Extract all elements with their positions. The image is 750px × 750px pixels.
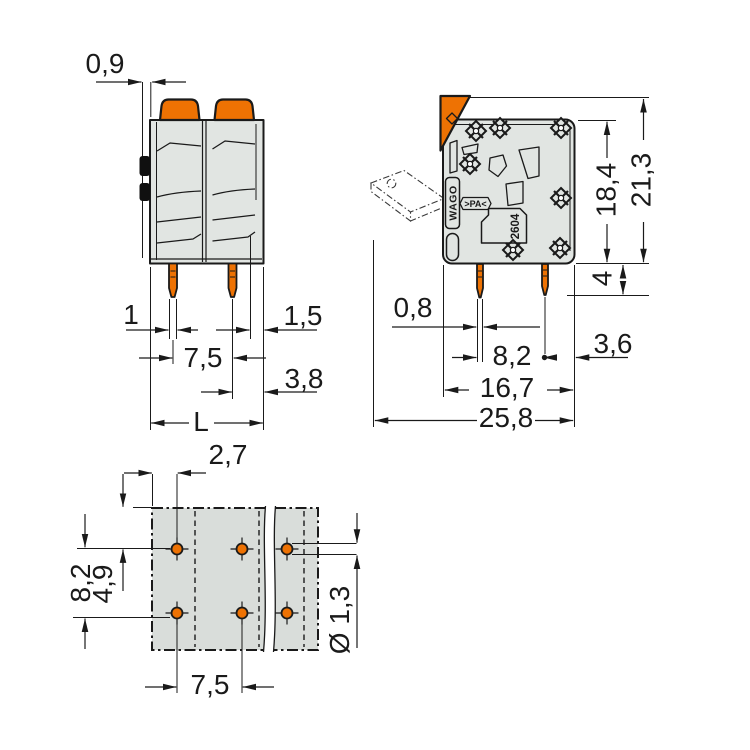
dim-label-pin-shoulder: 4 [587,271,618,287]
side-pin-front [477,264,483,298]
dim-label-pin-thickness: 0,8 [394,292,433,323]
dim-label-body-depth: 16,7 [480,372,535,403]
front-pin-left [169,264,177,298]
dim-label-pin-to-edge: 3,8 [285,363,324,394]
material-marking: >PA< [464,199,486,209]
push-button-left [160,100,200,121]
dim-label-total-depth: 25,8 [479,402,534,433]
dim-label-pin-width: 1 [123,299,139,330]
dim-label-edge-to-pin: 2,7 [209,439,248,470]
dim-label-edge-gap: 1,5 [284,300,323,331]
dim-label-total-height: 21,3 [626,153,657,208]
dim-label-body-height: 18,4 [591,163,622,218]
phantom-plate [371,171,444,222]
dim-label-latch-offset: 0,9 [86,48,125,79]
dim-label-pitch: 7,5 [184,342,223,373]
side-pin-rear [542,264,548,295]
dim-label-fp-row-spacing: 8,2 [65,564,96,603]
side-view: WAGO >PA< 2604 18,4 2 [371,96,657,433]
front-view: 0,9 [86,48,324,437]
technical-drawing-page: 0,9 [0,0,750,750]
push-button-right [215,100,255,121]
dim-label-hole-diameter: Ø 1,3 [324,586,355,654]
latch-tab-lower [140,183,151,201]
bottom-view: 2,7 4,9 8,2 7,5 Ø 1,3 [65,439,357,700]
dim-label-length: L [193,406,209,437]
dim-label-fp-pitch: 7,5 [191,669,230,700]
brand-marking: WAGO [448,185,460,220]
dim-label-edge-clearance: 3,6 [594,328,633,359]
terminal-block-drawing: 0,9 [0,0,750,750]
latch-tab-upper [140,156,151,176]
series-marking: 2604 [510,213,522,239]
front-pin-right [229,264,237,298]
dim-label-row-spacing: 8,2 [493,340,532,371]
